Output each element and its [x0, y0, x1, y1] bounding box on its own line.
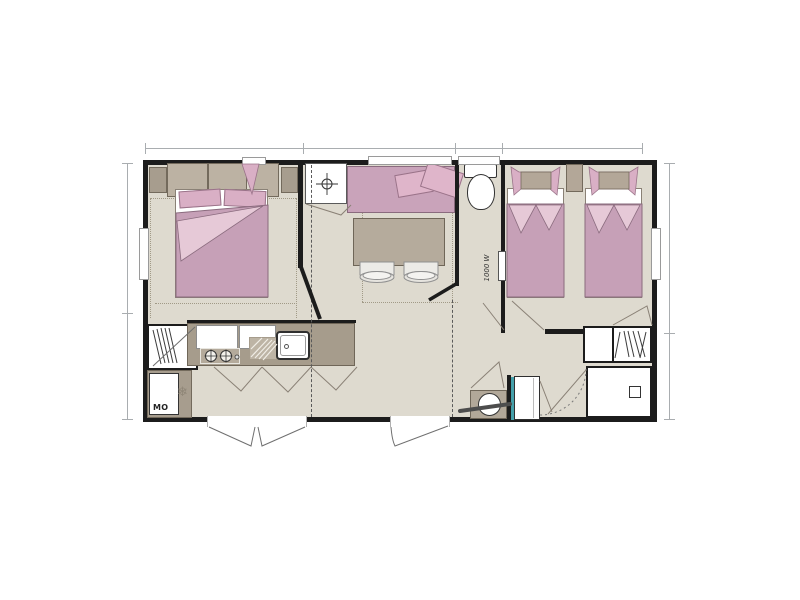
wardrobe-door-swing	[613, 306, 652, 325]
single-bed-right-bedding	[585, 167, 642, 297]
crosshair-icon	[316, 173, 338, 195]
hanging-clothes-icon	[615, 331, 646, 358]
hanging-clothes-icon	[153, 327, 195, 366]
shower-door-swing	[548, 370, 586, 414]
towel-bar	[460, 404, 510, 411]
cabinet-door-swing	[214, 367, 357, 392]
double-bed-bedding	[176, 164, 268, 297]
bedroom1-door-swing	[301, 267, 320, 319]
washbasin-door-swing	[471, 362, 504, 388]
wc-door-swing	[429, 284, 456, 300]
tall-cabinet-door-swing	[540, 381, 552, 412]
burner-icon	[205, 350, 240, 363]
stool	[404, 262, 438, 283]
single-bed-left-bedding	[507, 167, 564, 297]
bedroom2-door-swing	[483, 301, 544, 330]
french-door-swing	[209, 427, 305, 446]
linework-overlay	[0, 0, 800, 600]
drainer-ridges	[251, 338, 277, 360]
water-heater-door-swing	[306, 204, 351, 215]
floor-plan-canvas: MO ❄ 1000 W	[0, 0, 800, 600]
entrance-door-swing	[391, 426, 448, 446]
shower-door-arc	[540, 369, 586, 415]
stool	[360, 262, 394, 283]
